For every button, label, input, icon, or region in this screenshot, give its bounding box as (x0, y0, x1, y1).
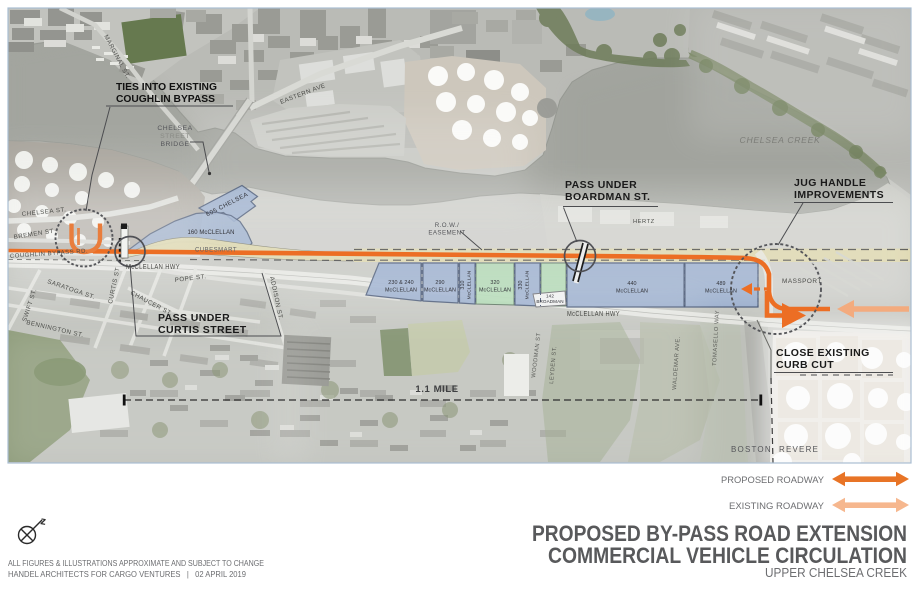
svg-text:REVERE: REVERE (779, 445, 819, 454)
svg-text:EASEMENT: EASEMENT (428, 230, 465, 237)
svg-text:CUBESMART: CUBESMART (195, 248, 237, 254)
svg-text:McCLELLAN: McCLELLAN (385, 288, 417, 294)
svg-text:PASS UNDER: PASS UNDER (565, 179, 637, 191)
svg-text:PROPOSED ROADWAY: PROPOSED ROADWAY (721, 475, 825, 486)
svg-text:R.O.W./: R.O.W./ (435, 222, 459, 229)
svg-text:142: 142 (546, 294, 554, 299)
svg-text:JUG HANDLE: JUG HANDLE (794, 177, 866, 189)
svg-text:CHELSEA: CHELSEA (157, 125, 192, 132)
svg-text:160 McCLELLAN: 160 McCLELLAN (188, 229, 235, 236)
svg-text:310: 310 (460, 280, 466, 289)
svg-text:440: 440 (627, 281, 636, 287)
svg-text:BOSTON: BOSTON (731, 445, 772, 454)
svg-text:BROADMAN: BROADMAN (536, 299, 563, 304)
svg-text:BRIDGE: BRIDGE (160, 141, 189, 148)
svg-text:330: 330 (518, 280, 524, 289)
svg-text:McCLELLAN: McCLELLAN (467, 270, 473, 299)
svg-text:230 & 240: 230 & 240 (388, 280, 413, 286)
svg-text:ALL FIGURES & ILLUSTRATIONS AP: ALL FIGURES & ILLUSTRATIONS APPROXIMATE … (8, 558, 264, 568)
svg-text:EXISTING ROADWAY: EXISTING ROADWAY (729, 501, 825, 512)
svg-text:320: 320 (490, 280, 499, 286)
svg-text:McCLELLAN: McCLELLAN (479, 288, 511, 294)
svg-text:CLOSE EXISTING: CLOSE EXISTING (776, 347, 870, 359)
svg-text:McCLELLAN: McCLELLAN (705, 289, 737, 295)
svg-text:290: 290 (435, 280, 444, 286)
svg-text:489: 489 (716, 281, 725, 287)
svg-text:CURB CUT: CURB CUT (776, 359, 834, 371)
svg-text:McCLELLAN: McCLELLAN (616, 289, 648, 295)
svg-text:IMPROVEMENTS: IMPROVEMENTS (794, 189, 884, 201)
svg-text:CURTIS STREET: CURTIS STREET (158, 324, 247, 336)
svg-text:McCLELLAN HWY: McCLELLAN HWY (126, 262, 180, 271)
svg-text:BOARDMAN ST.: BOARDMAN ST. (565, 191, 650, 203)
svg-text:STREET: STREET (160, 133, 190, 140)
svg-text:McCLELLAN: McCLELLAN (525, 270, 531, 299)
svg-text:MASSPORT: MASSPORT (782, 278, 822, 285)
svg-text:1.1 MILE: 1.1 MILE (415, 384, 458, 395)
svg-text:UPPER CHELSEA CREEK: UPPER CHELSEA CREEK (765, 565, 907, 580)
svg-text:HANDEL ARCHITECTS FOR CARGO VE: HANDEL ARCHITECTS FOR CARGO VENTURES | 0… (8, 569, 246, 579)
svg-text:HERTZ: HERTZ (633, 219, 655, 225)
svg-text:McCLELLAN: McCLELLAN (424, 288, 456, 294)
svg-text:McCLELLAN HWY: McCLELLAN HWY (567, 309, 620, 318)
svg-text:CHELSEA CREEK: CHELSEA CREEK (740, 135, 821, 145)
svg-text:COUGHLIN BYPASS: COUGHLIN BYPASS (116, 93, 215, 105)
svg-text:TIES INTO EXISTING: TIES INTO EXISTING (116, 81, 217, 93)
